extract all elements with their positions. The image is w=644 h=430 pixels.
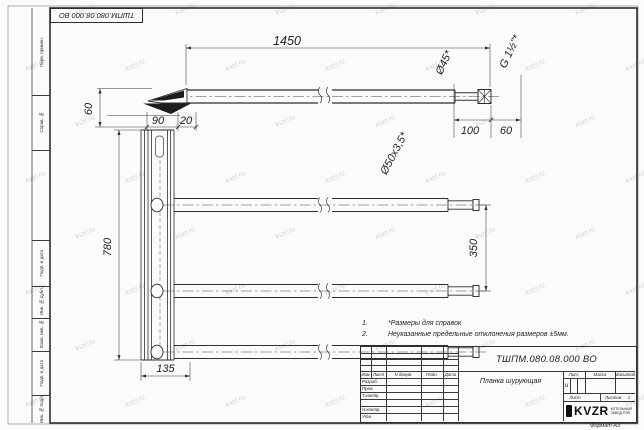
label-dia-reduced: Ø45* <box>433 48 455 77</box>
label-tube-size: Ø50х3,5* <box>378 130 411 178</box>
tb-masshtab-label: Масштаб <box>615 371 635 378</box>
logo-flame-icon <box>566 405 572 417</box>
top-view <box>97 87 500 116</box>
tube-1 <box>163 198 487 213</box>
tb-listov-label: Листов <box>602 393 624 401</box>
note-2-text: Неуказанные предельные отклонения размер… <box>388 331 569 338</box>
dim-plate-height: 780 <box>102 237 114 256</box>
dim-total-length: 1450 <box>273 34 301 48</box>
top-designation-stamp: ТШПМ.080.08.000 ВО <box>50 8 143 23</box>
dim-plate-w2: 20 <box>179 115 193 127</box>
tb-row-razrab: Разраб. <box>362 378 386 385</box>
tb-massa-label: Масса <box>585 371 615 378</box>
note-1-number: 1. <box>362 320 388 327</box>
margin-cell-podp-data-1: Подп. и дата <box>32 240 50 287</box>
tb-listov-value: 1 <box>624 393 634 401</box>
tube-2 <box>163 284 487 299</box>
tb-part-name: Планка шурующая <box>458 375 563 387</box>
tb-row-tkontr: Т.контр. <box>362 392 386 399</box>
tb-header-podp: Подп. <box>421 371 443 378</box>
dim-tube-spacing: 350 <box>468 238 480 257</box>
margin-cell-inv-podl: Инв. № подл. <box>32 395 50 423</box>
tb-header-izm: Изм. <box>361 371 371 378</box>
tb-header-ndoc: N докум. <box>386 371 421 378</box>
margin-cell-vzam-inv: Взам. инв. № <box>32 318 50 352</box>
note-1-text: *Размеры для справок <box>388 320 461 327</box>
tb-list-label: Лист <box>565 393 585 401</box>
margin-label: Перв. примен. <box>39 37 44 67</box>
tb-header-list: Лист <box>371 371 386 378</box>
dim-thread-length: 60 <box>500 125 513 137</box>
margin-cell-inv-dubl: Инв. № дубл. <box>32 285 50 319</box>
tb-row-prov: Пров. <box>362 385 386 392</box>
company-logo: KVZR КОТЕЛЬНЫЙ ЗАВОД РЭП <box>563 401 635 420</box>
tb-row-nkontr: Н.контр. <box>362 406 386 413</box>
drawing-sheet: kvzr.rukvzr.rukvzr.rukvzr.rukvzr.rukvzr.… <box>0 0 644 430</box>
tb-header-data: Дата <box>443 371 458 378</box>
scraper-tip <box>97 89 191 116</box>
top-designation-text: ТШПМ.080.08.000 ВО <box>59 11 135 20</box>
title-block: Изм. Лист N докум. Подп. Дата Разраб. Пр… <box>360 346 637 423</box>
dim-plate-depth: 135 <box>156 363 175 375</box>
note-1: 1. *Размеры для справок <box>362 320 461 327</box>
margin-cell-podp-data-2: Подп. и дата <box>32 351 50 396</box>
margin-label: Взам. инв. № <box>39 320 44 348</box>
tb-designation: ТШПМ.080.08.000 ВО <box>458 347 635 371</box>
margin-label: Инв. № дубл. <box>39 287 44 315</box>
channel-plate <box>141 130 174 360</box>
dim-end-length: 100 <box>461 125 480 137</box>
dim-plate-w1: 90 <box>152 115 165 127</box>
tb-lit-label: Лит. <box>563 371 585 378</box>
margin-label: Справ. № <box>39 112 44 133</box>
tb-row-utv: Утв. <box>362 413 386 420</box>
logo-kvzr-text: KVZR <box>574 404 609 418</box>
margin-cell-sprav: Справ. № <box>32 95 50 151</box>
tb-litera-value: и <box>563 378 570 393</box>
logo-subtitle-line2: ЗАВОД РЭП <box>611 411 632 415</box>
margin-cell-perv-primen: Перв. примен. <box>32 8 50 96</box>
note-2-number: 2. <box>362 331 388 338</box>
note-2: 2. Неуказанные предельные отклонения раз… <box>362 331 569 338</box>
dim-tip-offset: 60 <box>83 102 95 115</box>
format-label: Формат А3 <box>590 423 620 429</box>
margin-label: Подп. и дата <box>39 360 44 387</box>
margin-label: Подп. и дата <box>39 250 44 277</box>
logo-subtitle: КОТЕЛЬНЫЙ ЗАВОД РЭП <box>611 407 632 415</box>
label-thread: G 1½"* <box>497 33 523 71</box>
margin-label: Инв. № подл. <box>39 395 44 423</box>
